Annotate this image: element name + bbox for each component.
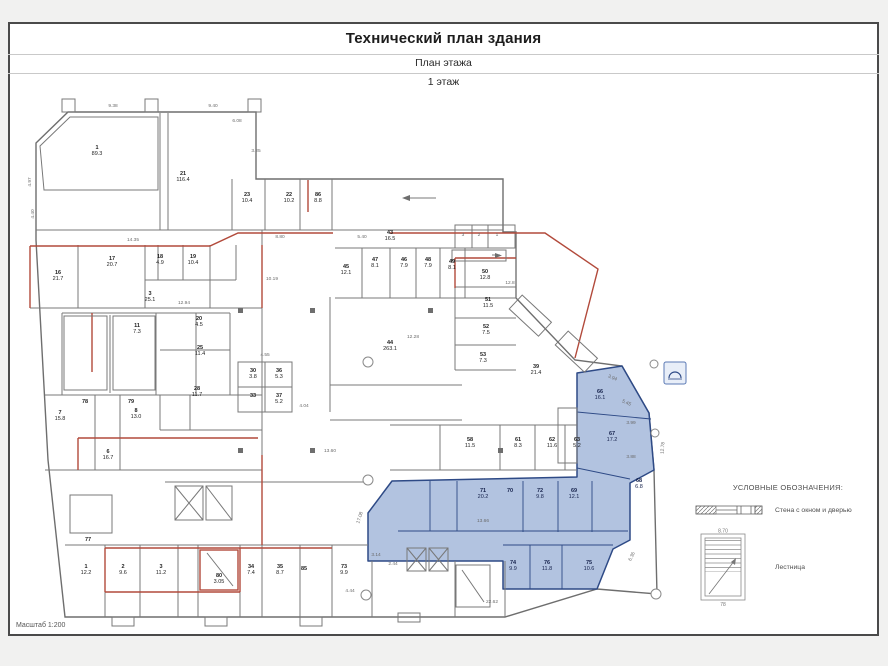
legend: УСЛОВНЫЕ ОБОЗНАЧЕНИЯ: Стена с окном и [695, 483, 881, 618]
room-label: 44263.1 [383, 340, 397, 352]
column-marks [238, 308, 503, 453]
legend-item-label: Стена с окном и дверью [771, 507, 852, 514]
stairwell-77 [70, 495, 112, 533]
room-label: 739.9 [340, 564, 348, 576]
corridor-arrow [402, 195, 502, 258]
dimension-label: 14.35 [127, 237, 139, 243]
dimension-label: 17.08 [355, 511, 365, 525]
room-label: 467.9 [400, 257, 408, 269]
room-label: 375.2 [275, 393, 283, 405]
dimension-label: 6.08 [232, 118, 242, 124]
dimension-label: 3.14 [371, 552, 381, 558]
dimension-label: 3 [462, 232, 465, 238]
room-label: 311.2 [156, 564, 166, 576]
room-label: 527.5 [482, 324, 490, 336]
room-label: 6211.6 [547, 437, 557, 449]
room-label: 5012.8 [480, 269, 491, 281]
room-label: 85 [301, 566, 307, 572]
room-label: 4512.1 [341, 264, 352, 276]
room-label: 715.8 [55, 410, 66, 422]
survey-point [651, 589, 661, 599]
room-label: 358.7 [276, 564, 284, 576]
room-label: 729.8 [536, 488, 544, 500]
room-label: 204.5 [195, 316, 203, 328]
room-label: 635.2 [573, 437, 581, 449]
legend-item-stairs: 8.70 78 Лестница [695, 526, 881, 608]
dimension-label: 4.04 [299, 403, 309, 409]
dimension-label: 12.94 [178, 300, 190, 306]
dimension-label: 3.25 [251, 148, 261, 154]
dimension-label: 3.88 [626, 454, 636, 460]
survey-point [361, 590, 371, 600]
room-label: 33 [250, 393, 256, 399]
room-label: 2310.4 [242, 192, 253, 204]
room-label: 813.0 [131, 408, 142, 420]
survey-point [650, 360, 658, 368]
room-label: 1720.7 [107, 256, 118, 268]
room-label: 803.05 [214, 573, 225, 585]
room-label: 868.8 [314, 192, 322, 204]
room-label: 70 [507, 488, 513, 494]
room-label: 5811.5 [465, 437, 475, 449]
room-label: 29.6 [119, 564, 127, 576]
legend-item-wall: Стена с окном и дверью [695, 504, 881, 516]
dimension-label: 1 [496, 232, 499, 238]
svg-text:8.70: 8.70 [718, 529, 728, 535]
dimension-label: 6.36 [627, 551, 637, 562]
room-label: 487.9 [424, 257, 432, 269]
wall-with-window-and-door-symbol [695, 504, 771, 516]
room-label: 686.8 [635, 478, 643, 490]
room-label: 303.8 [249, 368, 257, 380]
survey-point [651, 429, 659, 437]
room-label: 1910.4 [188, 254, 199, 266]
dimension-label: 10.19 [266, 276, 278, 282]
room-label: 21116.4 [176, 171, 189, 183]
dimension-label: 2.44 [388, 561, 398, 567]
room-label: 618.3 [514, 437, 522, 449]
room-label: 77 [85, 537, 91, 543]
dimension-label: 22.62 [486, 599, 498, 605]
legend-item-label: Лестница [771, 564, 805, 571]
dimension-label: 2 [478, 232, 481, 238]
dimension-label: 12.78 [660, 441, 667, 454]
dimension-label: 13.66 [477, 518, 489, 524]
room-label: 189.3 [92, 145, 103, 157]
survey-point [363, 357, 373, 367]
stairwell-78 [64, 316, 107, 390]
dimension-label: 13.60 [324, 448, 336, 454]
diagonal-stair [509, 295, 551, 336]
room-label: 2210.2 [284, 192, 295, 204]
dimension-label: 3.99 [626, 420, 636, 426]
marker-icon [664, 362, 686, 384]
room-label: 749.9 [509, 560, 517, 572]
room-label: 184.9 [156, 254, 164, 266]
room-label: 347.4 [247, 564, 255, 576]
room-label: 2811.7 [192, 386, 202, 398]
room-label: 478.1 [371, 257, 379, 269]
room-label: 79 [128, 399, 134, 405]
room-label: 117.3 [133, 323, 141, 335]
stairs-symbol: 8.70 78 [695, 526, 771, 608]
room-label: 3921.4 [531, 364, 542, 376]
legend-heading: УСЛОВНЫЕ ОБОЗНАЧЕНИЯ: [695, 483, 881, 492]
dimension-label: 4.55 [260, 352, 270, 358]
dimension-label: 9.38 [108, 103, 118, 109]
room-label: 325.1 [145, 291, 156, 303]
room-label: 5111.5 [483, 297, 493, 309]
room-label: 537.3 [479, 352, 487, 364]
dimension-label: 5.40 [357, 234, 367, 240]
room-label: 112.2 [81, 564, 92, 576]
highlighted-area [368, 366, 654, 589]
dimension-label: 4.97 [27, 177, 33, 187]
dimension-label: 12.28 [407, 334, 419, 340]
dimension-label: 9.40 [208, 103, 218, 109]
dimension-label: 4.44 [345, 588, 355, 594]
stairwell-right [558, 408, 577, 463]
room-label: 4316.5 [385, 230, 396, 242]
survey-point [363, 475, 373, 485]
technical-plan-document: Технический план здания План этажа 1 эта… [0, 0, 888, 666]
dimension-label: 8.80 [275, 234, 285, 240]
dimension-label: 4.40 [30, 209, 36, 219]
scale-label: Масштаб 1:200 [16, 622, 65, 629]
room-label: 1621.7 [53, 270, 64, 282]
room-label: 616.7 [103, 449, 114, 461]
svg-text:78: 78 [720, 602, 726, 608]
highlighted-premises-polygon [368, 366, 654, 589]
room-label: 365.3 [275, 368, 283, 380]
room-label: 2511.4 [195, 345, 205, 357]
dimension-label: 12.8 [505, 280, 515, 286]
room-label: 78 [82, 399, 88, 405]
room-label: 498.1 [448, 259, 456, 271]
